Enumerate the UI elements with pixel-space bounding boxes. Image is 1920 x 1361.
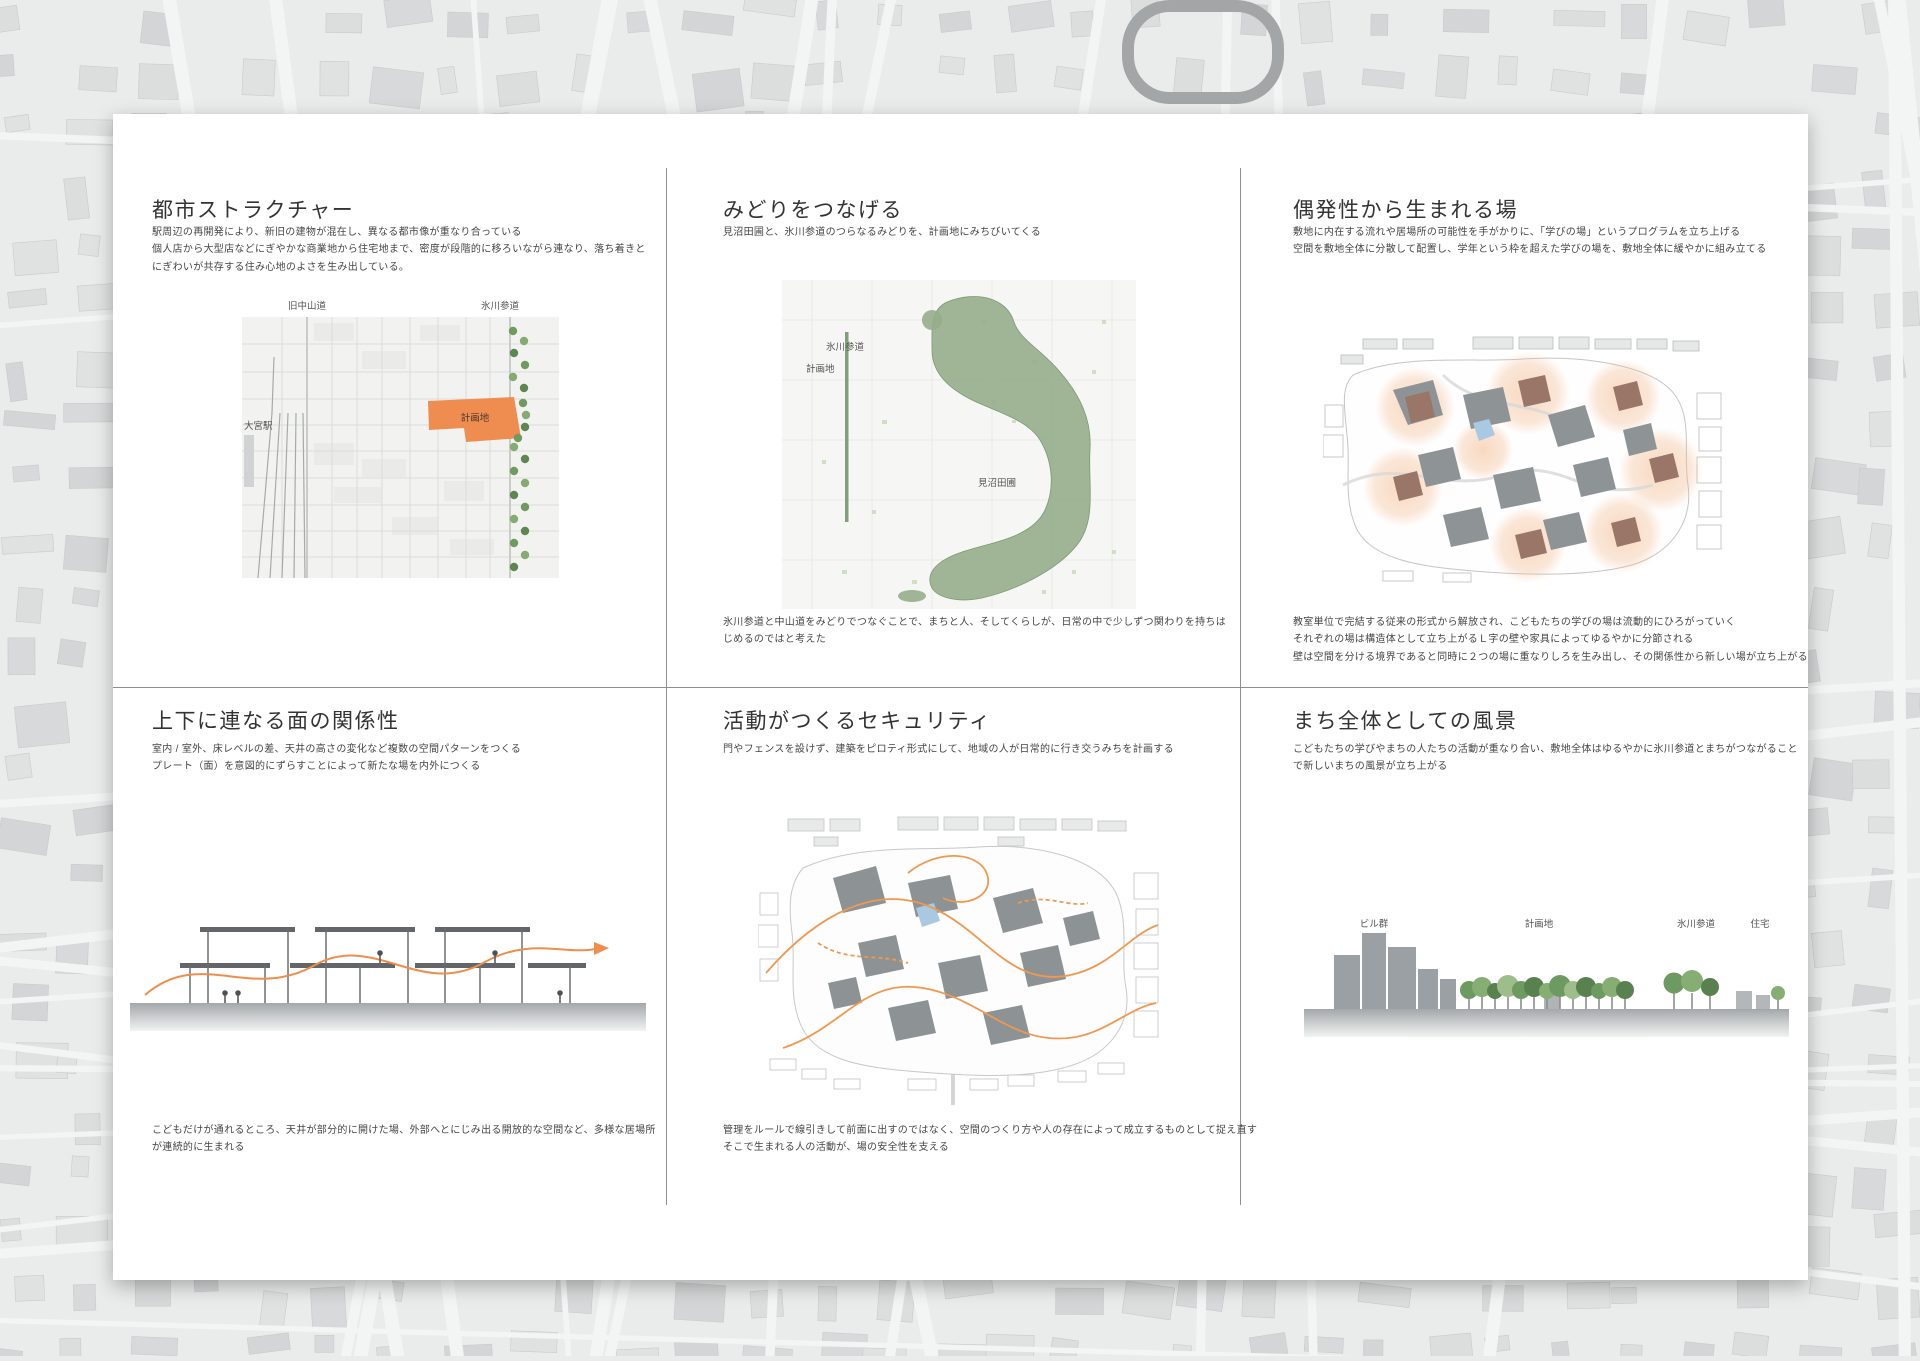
label-hikawa-sando: 氷川参道: [1677, 918, 1716, 930]
panel-title-activity-security: 活動がつくるセキュリティ: [723, 705, 991, 735]
presentation-sheet: 都市ストラクチャー 駅周辺の再開発により、新旧の建物が混在し、異なる都市像が重な…: [113, 114, 1808, 1280]
panel-body-townscape: こどもたちの学びやまちの人たちの活動が重なり合い、敷地全体はゆるやかに氷川参道と…: [1293, 741, 1798, 776]
urban-structure-map: 旧中山道 氷川参道 大宮駅 計画地: [242, 295, 559, 578]
panel-title-townscape: まち全体としての風景: [1293, 705, 1517, 735]
panel-footer-activity-security: 管理をルールで線引きして前面に出すのではなく、空間のつくり方や人の存在によって成…: [723, 1122, 1257, 1157]
office-towers: [1334, 933, 1456, 1009]
section-diagram: [130, 907, 646, 1031]
panel-body-activity-security: 門やフェンスを設けず、建築をピロティ形式にして、地域の人が日常的に行き交うみちを…: [723, 741, 1174, 758]
label-site: 計画地: [1525, 918, 1554, 930]
label-site: 計画地: [461, 412, 490, 424]
label-omiya-station: 大宮駅: [244, 420, 273, 432]
panel-footer-stacked-planes: こどもだけが通れるところ、天井が部分的に開けた場、外部へとにじみ出る開放的な空間…: [152, 1122, 656, 1157]
ground: [1304, 1009, 1789, 1037]
label-hikawa-sando: 氷川参道: [826, 341, 865, 353]
site-trees: [1460, 975, 1634, 1009]
flow-arrowhead: [594, 942, 609, 955]
label-buildings: ビル群: [1360, 918, 1389, 930]
townscape-elevation: ビル群 計画地 氷川参道 住宅: [1304, 913, 1789, 1037]
panel-title-urban-structure: 都市ストラクチャー: [152, 194, 354, 224]
sando-trees: [1664, 970, 1720, 1009]
panel-body-serendipity: 敷地に内在する流れや居場所の可能性を手がかりに、「学びの場」というプログラムを立…: [1293, 224, 1767, 259]
label-site: 計画地: [806, 363, 835, 375]
panel-body-connect-green: 見沼田圃と、氷川参道のつらなるみどりを、計画地にみちびいてくる: [723, 224, 1041, 241]
panel-body-stacked-planes: 室内 / 室外、床レベルの差、天井の高さの変化など複数の空間パターンをつくる プ…: [152, 741, 521, 776]
panel-footer-serendipity: 教室単位で完結する従来の形式から解放され、こどもたちの学びの場は流動的にひろがっ…: [1293, 614, 1808, 666]
green-network-map: 氷川参道 計画地 見沼田圃: [782, 280, 1136, 609]
houses: [1736, 991, 1770, 1009]
label-minuma-fields: 見沼田圃: [978, 478, 1016, 489]
panel-title-serendipity: 偶発性から生まれる場: [1293, 194, 1518, 224]
label-houses: 住宅: [1750, 918, 1769, 930]
learning-places-site-plan: [1323, 335, 1726, 584]
label-old-nakasendo: 旧中山道: [288, 300, 327, 312]
label-hikawa-sando: 氷川参道: [481, 300, 520, 312]
row-divider: [113, 687, 1808, 688]
sando-green-line: [845, 332, 849, 522]
people-figures: [223, 951, 562, 1003]
panel-footer-connect-green: 氷川参道と中山道をみどりでつなぐことで、まちと人、そしてくらしが、日常の中で少し…: [723, 614, 1226, 649]
panel-title-connect-green: みどりをつなげる: [723, 194, 903, 224]
floor-plates: [180, 927, 586, 968]
panel-title-stacked-planes: 上下に連なる面の関係性: [152, 705, 400, 735]
ground: [130, 1003, 646, 1031]
flow-arrow: [145, 948, 595, 995]
panel-body-urban-structure: 駅周辺の再開発により、新旧の建物が混在し、異なる都市像が重なり合っている 個人店…: [152, 224, 646, 276]
station-block: [244, 435, 254, 487]
context-buildings: [788, 817, 1126, 846]
security-site-plan: [758, 813, 1161, 1105]
